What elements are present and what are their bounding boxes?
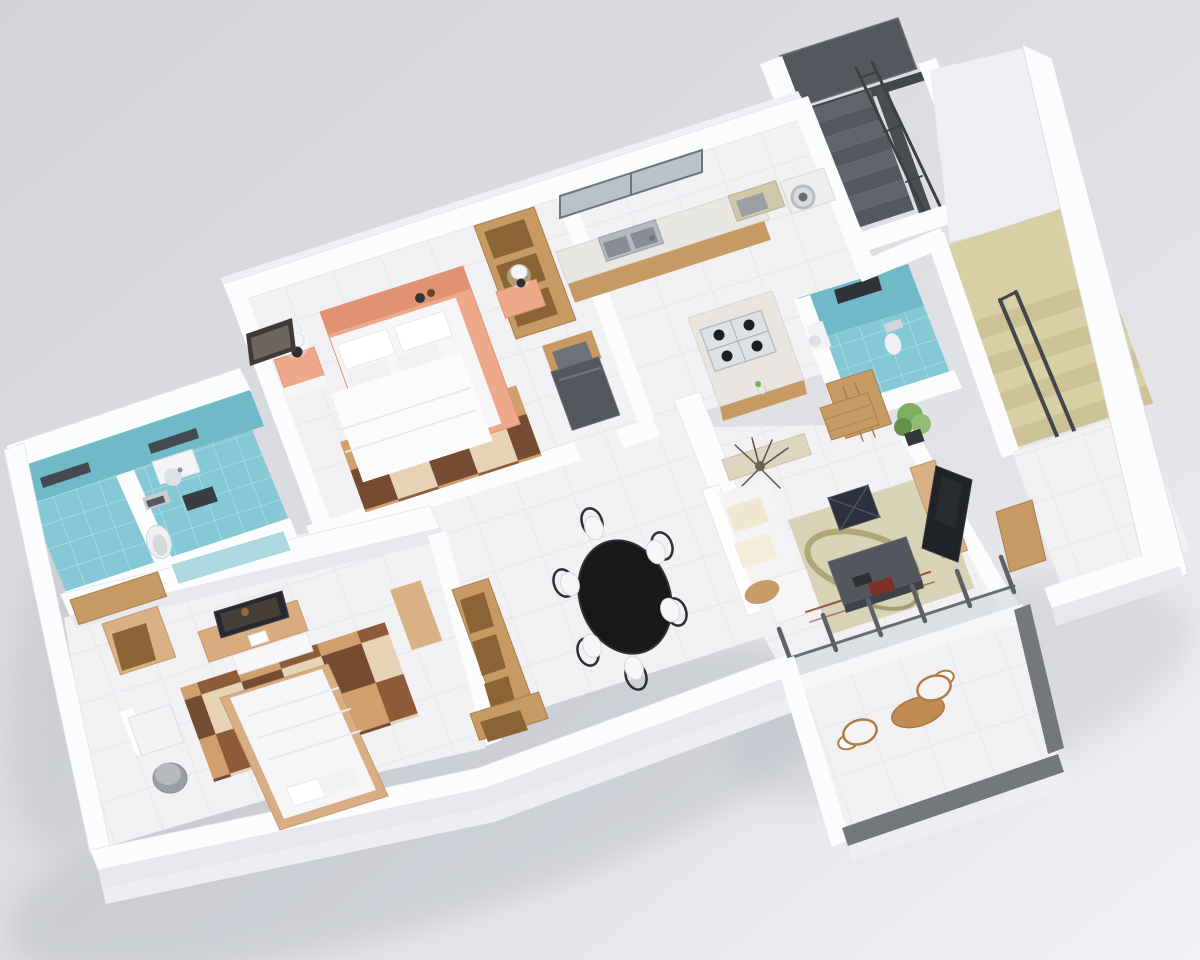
stove-vase-flower [758, 386, 766, 394]
master-lamp-right-base [517, 279, 526, 288]
stove-burner-4 [752, 341, 763, 352]
stove-burner-2 [744, 320, 755, 331]
washbasin2-bowl [809, 335, 821, 347]
headboard-decor-2 [427, 289, 435, 297]
tv-2-image-color [241, 608, 249, 616]
headboard-decor-1 [415, 293, 425, 303]
washbasin-left-faucet [178, 468, 183, 473]
floorplan-image [0, 0, 1200, 960]
dry-plant-core [755, 461, 765, 471]
floorplan-scene [0, 0, 1200, 960]
washing-machine-door-inner [799, 193, 808, 202]
stove-burner-3 [722, 351, 733, 362]
master-lamp-right-shade [511, 265, 527, 279]
stove-burner-1 [714, 330, 725, 341]
bedroom2-pouf-top [155, 763, 181, 785]
kitchen-faucet [649, 235, 655, 241]
